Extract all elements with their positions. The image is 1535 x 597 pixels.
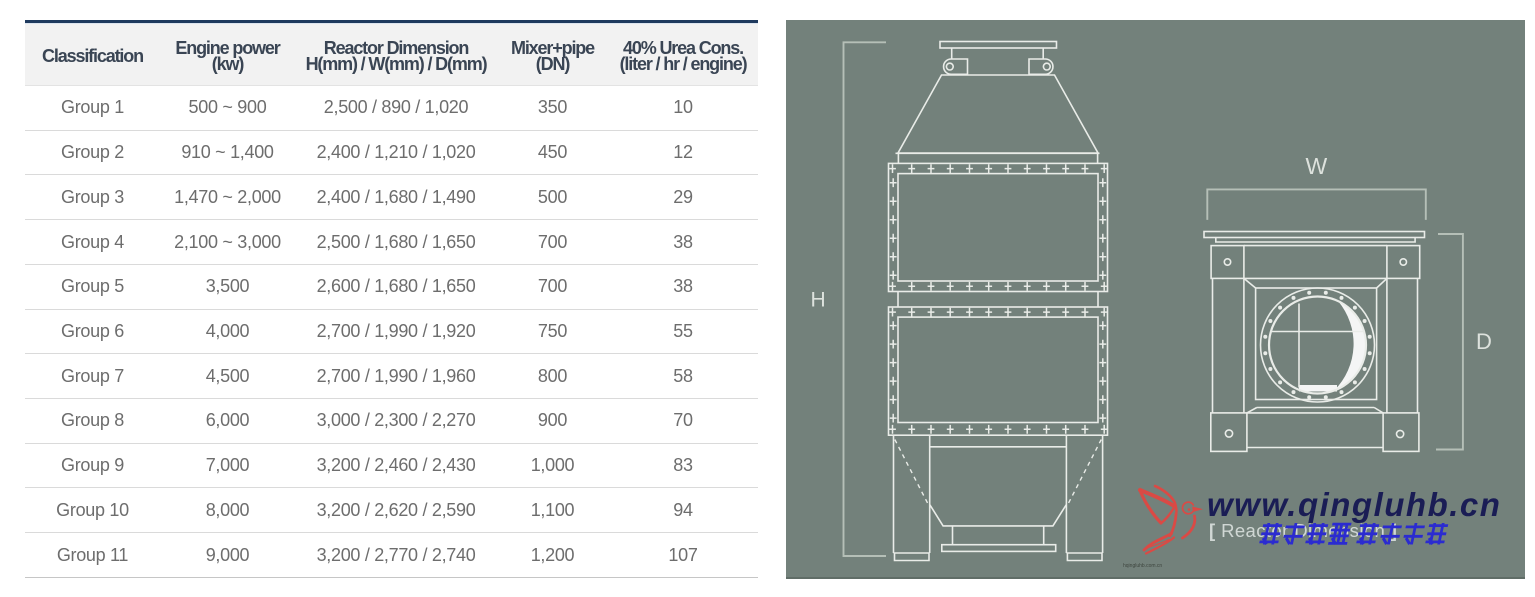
svg-text:W: W (1306, 153, 1328, 179)
svg-text:D: D (1476, 329, 1492, 354)
svg-text:H: H (811, 289, 826, 312)
